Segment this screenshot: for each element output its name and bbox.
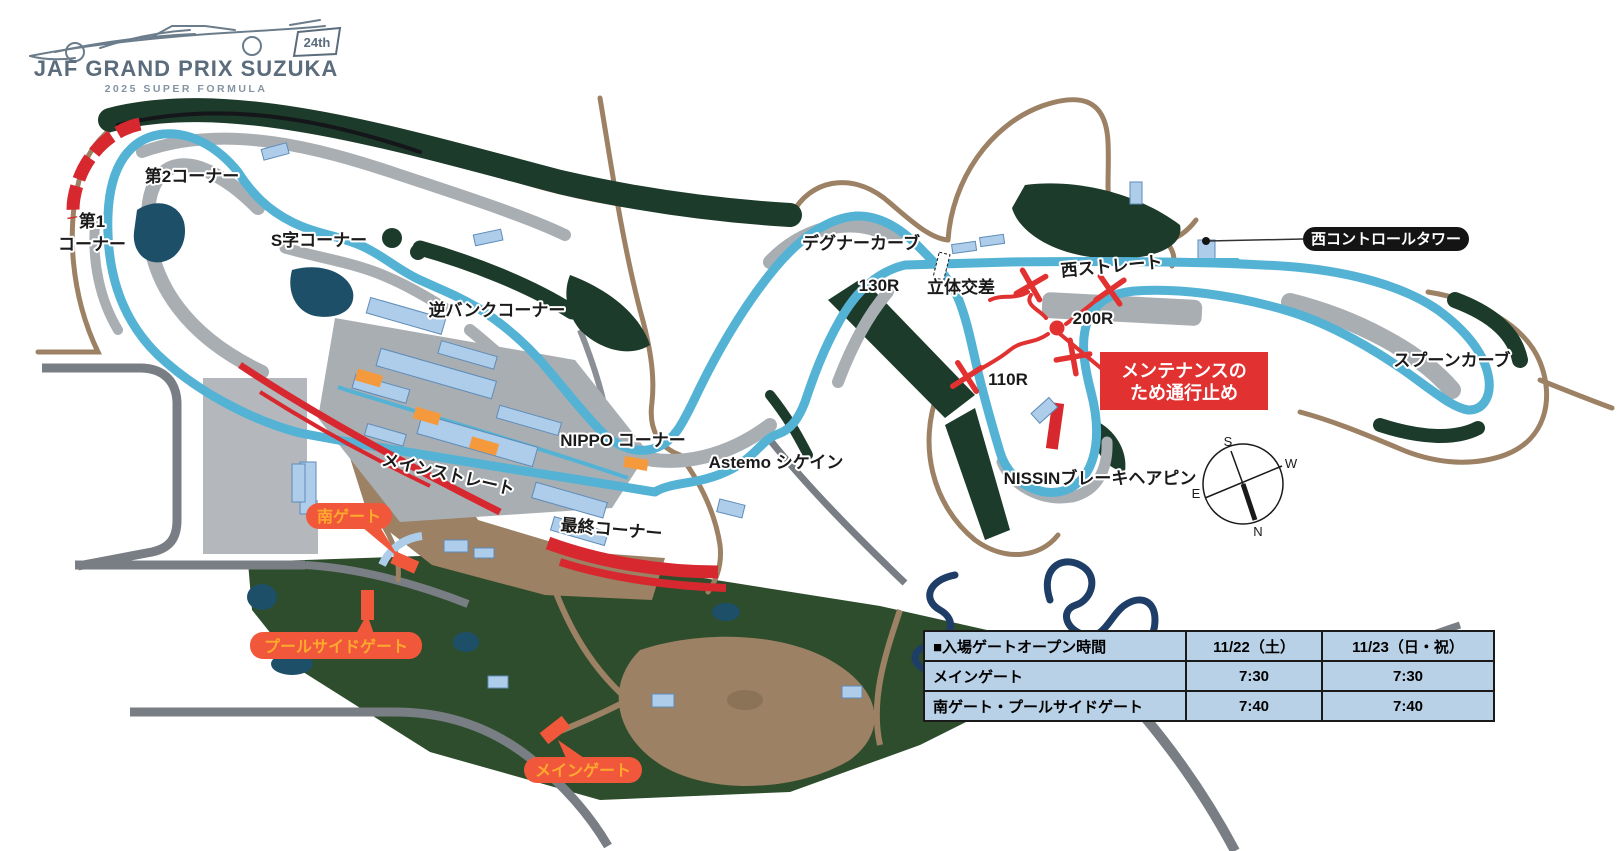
label-corner1-line1: 第1: [79, 211, 105, 231]
event-logo: 24th JAF GRAND PRIX SUZUKA 2025 SUPER FO…: [30, 20, 340, 95]
table-header-title: ■入場ゲートオープン時間: [924, 631, 1186, 661]
circuit-map-page: 第2コーナー 第1 コーナー S字コーナー 逆バンクコーナー デグナーカーブ 1…: [0, 0, 1618, 851]
forest-areas: [110, 110, 1520, 540]
closure-dot: [1050, 321, 1065, 336]
logo-title: JAF GRAND PRIX SUZUKA: [34, 56, 339, 81]
label-astemo: Astemo シケイン: [709, 453, 844, 472]
compass-s: S: [1224, 434, 1233, 449]
gate-name-cell: 南ゲート・プールサイドゲート: [924, 691, 1186, 721]
label-corner1-line2: コーナー: [58, 235, 126, 254]
label-degner: デグナーカーブ: [802, 233, 920, 253]
label-200r: 200R: [1073, 309, 1114, 328]
logo-subtitle: 2025 SUPER FORMULA: [105, 83, 268, 95]
closure-note-line2: ため通行止め: [1130, 382, 1238, 403]
park-fountain: [727, 690, 763, 710]
label-nissin-hairpin: NISSINブレーキヘアピン: [1004, 468, 1197, 488]
label-reverse-bank: 逆バンクコーナー: [429, 300, 566, 320]
badge-24th-text: 24th: [304, 35, 331, 50]
table-row: メインゲート 7:30 7:30: [924, 661, 1494, 691]
closure-callout: メンテナンスの ため通行止め: [1100, 352, 1268, 410]
label-spoon: スプーンカーブ: [1393, 350, 1510, 370]
time-cell: 7:30: [1186, 661, 1322, 691]
park-pond: [247, 584, 277, 610]
time-cell: 7:40: [1322, 691, 1494, 721]
main-gate-label: メインゲート: [535, 761, 631, 780]
compass-rose: S W E N: [1192, 434, 1298, 539]
label-corner2: 第2コーナー: [145, 166, 239, 186]
table-header-day2: 11/23（日・祝）: [1322, 631, 1494, 661]
label-final-corner: 最終コーナー: [560, 515, 663, 544]
time-cell: 7:30: [1322, 661, 1494, 691]
time-cell: 7:40: [1186, 691, 1322, 721]
label-nippo: NIPPO コーナー: [560, 431, 686, 450]
table-header-day1: 11/22（土）: [1186, 631, 1322, 661]
compass-w: W: [1285, 456, 1298, 471]
compass-e: E: [1192, 486, 1201, 501]
park-pond: [453, 632, 479, 652]
label-west-straight: 西ストレート: [1060, 253, 1163, 281]
label-grade-crossing: 立体交差: [927, 277, 995, 297]
compass-n: N: [1253, 524, 1262, 539]
closure-note-line1: メンテナンスの: [1121, 361, 1247, 381]
gate-open-schedule-table: ■入場ゲートオープン時間 11/22（土） 11/23（日・祝） メインゲート …: [923, 630, 1495, 722]
racecar-sketch-icon: [30, 20, 325, 61]
table-row: 南ゲート・プールサイドゲート 7:40 7:40: [924, 691, 1494, 721]
poolside-gate-label: プールサイドゲート: [264, 637, 408, 656]
label-130r: 130R: [859, 276, 900, 295]
table-header-row: ■入場ゲートオープン時間 11/22（土） 11/23（日・祝）: [924, 631, 1494, 661]
label-west-control-tower: 西コントロールタワー: [1311, 231, 1461, 248]
suzuka-circuit-map: 第2コーナー 第1 コーナー S字コーナー 逆バンクコーナー デグナーカーブ 1…: [0, 0, 1618, 851]
west-control-tower-callout: 西コントロールタワー: [1202, 227, 1469, 251]
gate-name-cell: メインゲート: [924, 661, 1186, 691]
park-pond: [712, 603, 740, 621]
label-110r: 110R: [988, 370, 1028, 389]
south-gate-label: 南ゲート: [317, 507, 381, 526]
label-s-curves: S字コーナー: [271, 230, 367, 250]
